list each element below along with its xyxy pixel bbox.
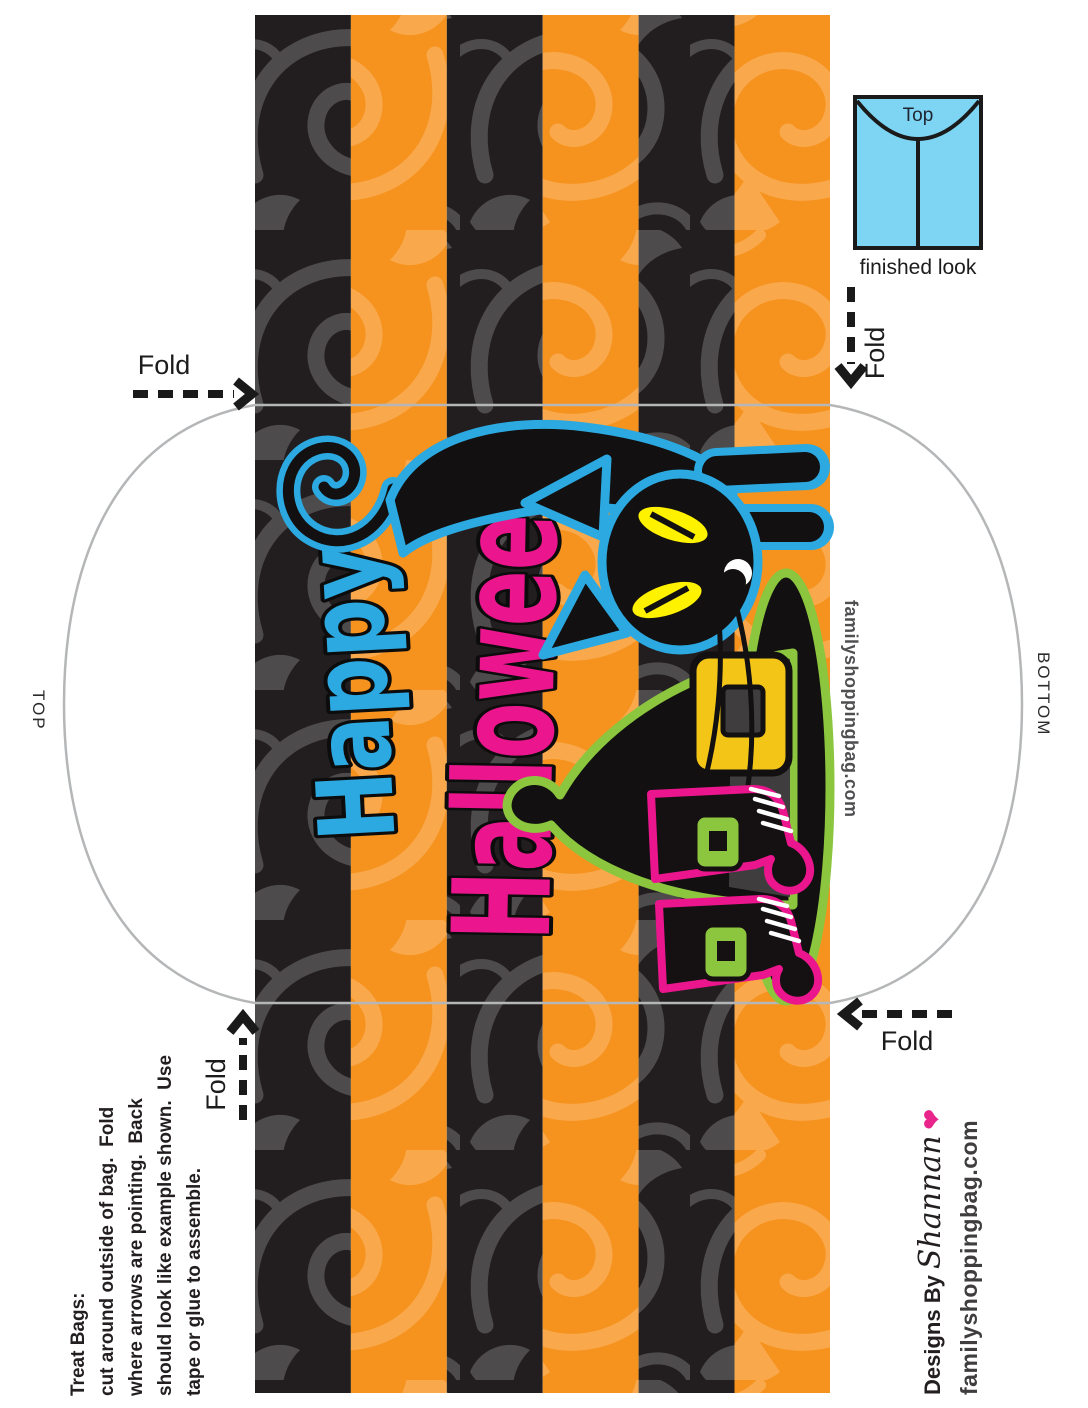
artwork-word-happy: Happy bbox=[282, 543, 419, 844]
instructions-line: where arrows are pointing. Back bbox=[122, 1036, 151, 1396]
credits-designer-name: Shannan bbox=[913, 1135, 948, 1269]
instructions-line: should look like example shown. Use bbox=[151, 1036, 180, 1396]
side-label-top: TOP bbox=[28, 690, 48, 742]
credits-website: familyshoppingbag.com bbox=[956, 1090, 983, 1395]
credits-designer-line: Designs By Shannan ❤ bbox=[908, 1090, 956, 1395]
instructions-block: Treat Bags: cut around outside of bag. F… bbox=[64, 1036, 220, 1396]
finished-look-top-label: Top bbox=[857, 105, 979, 127]
hat-buckle-hole bbox=[723, 687, 763, 735]
fold-label-top-left: Fold bbox=[126, 350, 202, 381]
finished-look-caption: finished look bbox=[840, 256, 996, 280]
heart-icon: ❤ bbox=[919, 1109, 946, 1129]
cut-arc-left bbox=[64, 405, 255, 1003]
watermark-website: familyshoppingbag.com bbox=[840, 600, 861, 812]
instructions-heading: Treat Bags: bbox=[64, 1036, 93, 1396]
credits-block: Designs By Shannan ❤ familyshoppingbag.c… bbox=[908, 1090, 1003, 1395]
fold-arrow-top-left bbox=[133, 381, 252, 407]
fold-label-bottom-right: Fold bbox=[862, 1026, 952, 1057]
finished-look-diagram: Top bbox=[853, 95, 983, 250]
instructions-line: cut around outside of bag. Fold bbox=[93, 1036, 122, 1396]
side-label-bottom: BOTTOM bbox=[1033, 652, 1053, 748]
fold-label-right: Fold bbox=[856, 308, 894, 398]
fold-arrow-bottom-right bbox=[844, 1001, 952, 1027]
instructions-line: tape or glue to assemble. bbox=[180, 1036, 209, 1396]
credits-prefix: Designs By bbox=[920, 1269, 945, 1395]
